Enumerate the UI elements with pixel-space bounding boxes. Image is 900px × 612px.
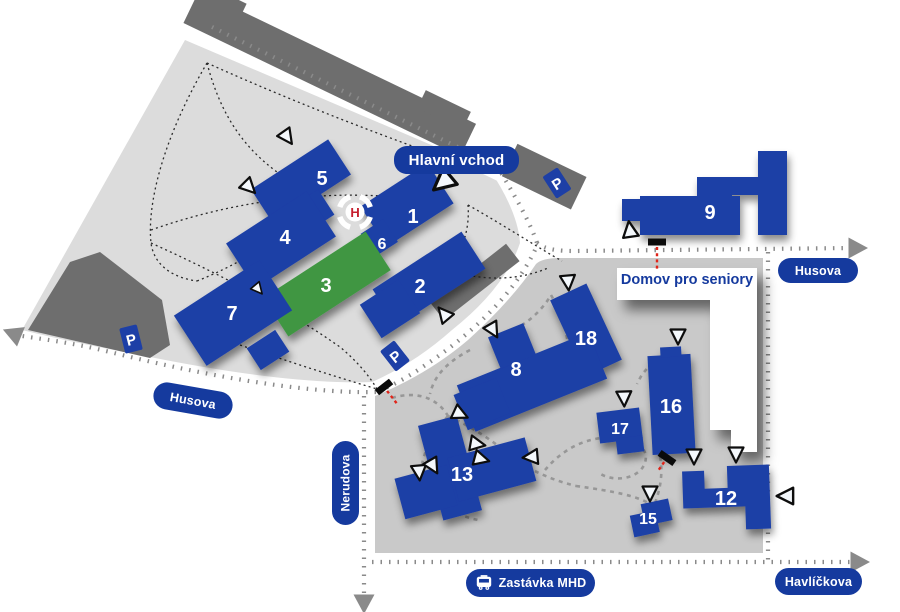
entrance-arrow-icon (777, 488, 794, 505)
bus-stop-label: Zastávka MHD (466, 569, 595, 597)
street-label-husova-east: Husova (778, 258, 858, 283)
building-1-number: 1 (407, 206, 418, 228)
building-7-number: 7 (226, 303, 237, 325)
street-label-nerudova: Nerudova (332, 441, 359, 525)
street-direction-arrow (849, 238, 869, 259)
main-entrance-label: Hlavní vchod (394, 146, 519, 174)
building-18-number: 18 (575, 328, 597, 350)
street-label-havlickova: Havlíčkova (775, 568, 862, 595)
building-6-number: 6 (378, 236, 387, 253)
street-label-nerudova-text: Nerudova (339, 455, 353, 512)
building-15-number: 15 (639, 511, 657, 528)
building-3-number: 3 (320, 275, 331, 297)
bus-stop-text: Zastávka MHD (499, 576, 587, 590)
building-8-number: 8 (510, 359, 521, 381)
street-direction-arrow (354, 595, 375, 612)
building-17-number: 17 (611, 421, 629, 438)
building-5-number: 5 (316, 168, 327, 190)
building-13-number: 13 (451, 464, 473, 486)
seniors-home-label: Domov pro seniory (612, 272, 762, 288)
building-9-number: 9 (704, 202, 715, 224)
building-16-number: 16 (660, 396, 682, 418)
building-12-number: 12 (715, 488, 737, 510)
map-canvas: 1 2 3 4 5 6 7 8 9 12 13 15 16 17 18 H P … (0, 0, 900, 612)
helipad-letter: H (350, 205, 359, 220)
entrance-arrow-icon (621, 220, 639, 238)
street-direction-arrow (0, 320, 25, 347)
bus-icon (475, 574, 493, 592)
hospital-campus-map: 1 2 3 4 5 6 7 8 9 12 13 15 16 17 18 H P … (0, 0, 900, 612)
building-2-number: 2 (414, 276, 425, 298)
building-4-number: 4 (279, 227, 291, 249)
